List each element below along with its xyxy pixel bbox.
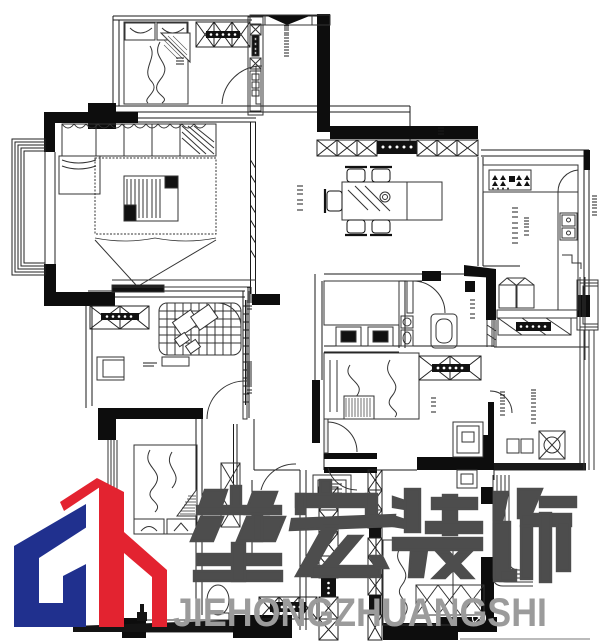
svg-text:JIEHONGZHUANGSHI: JIEHONGZHUANGSHI (173, 591, 547, 635)
